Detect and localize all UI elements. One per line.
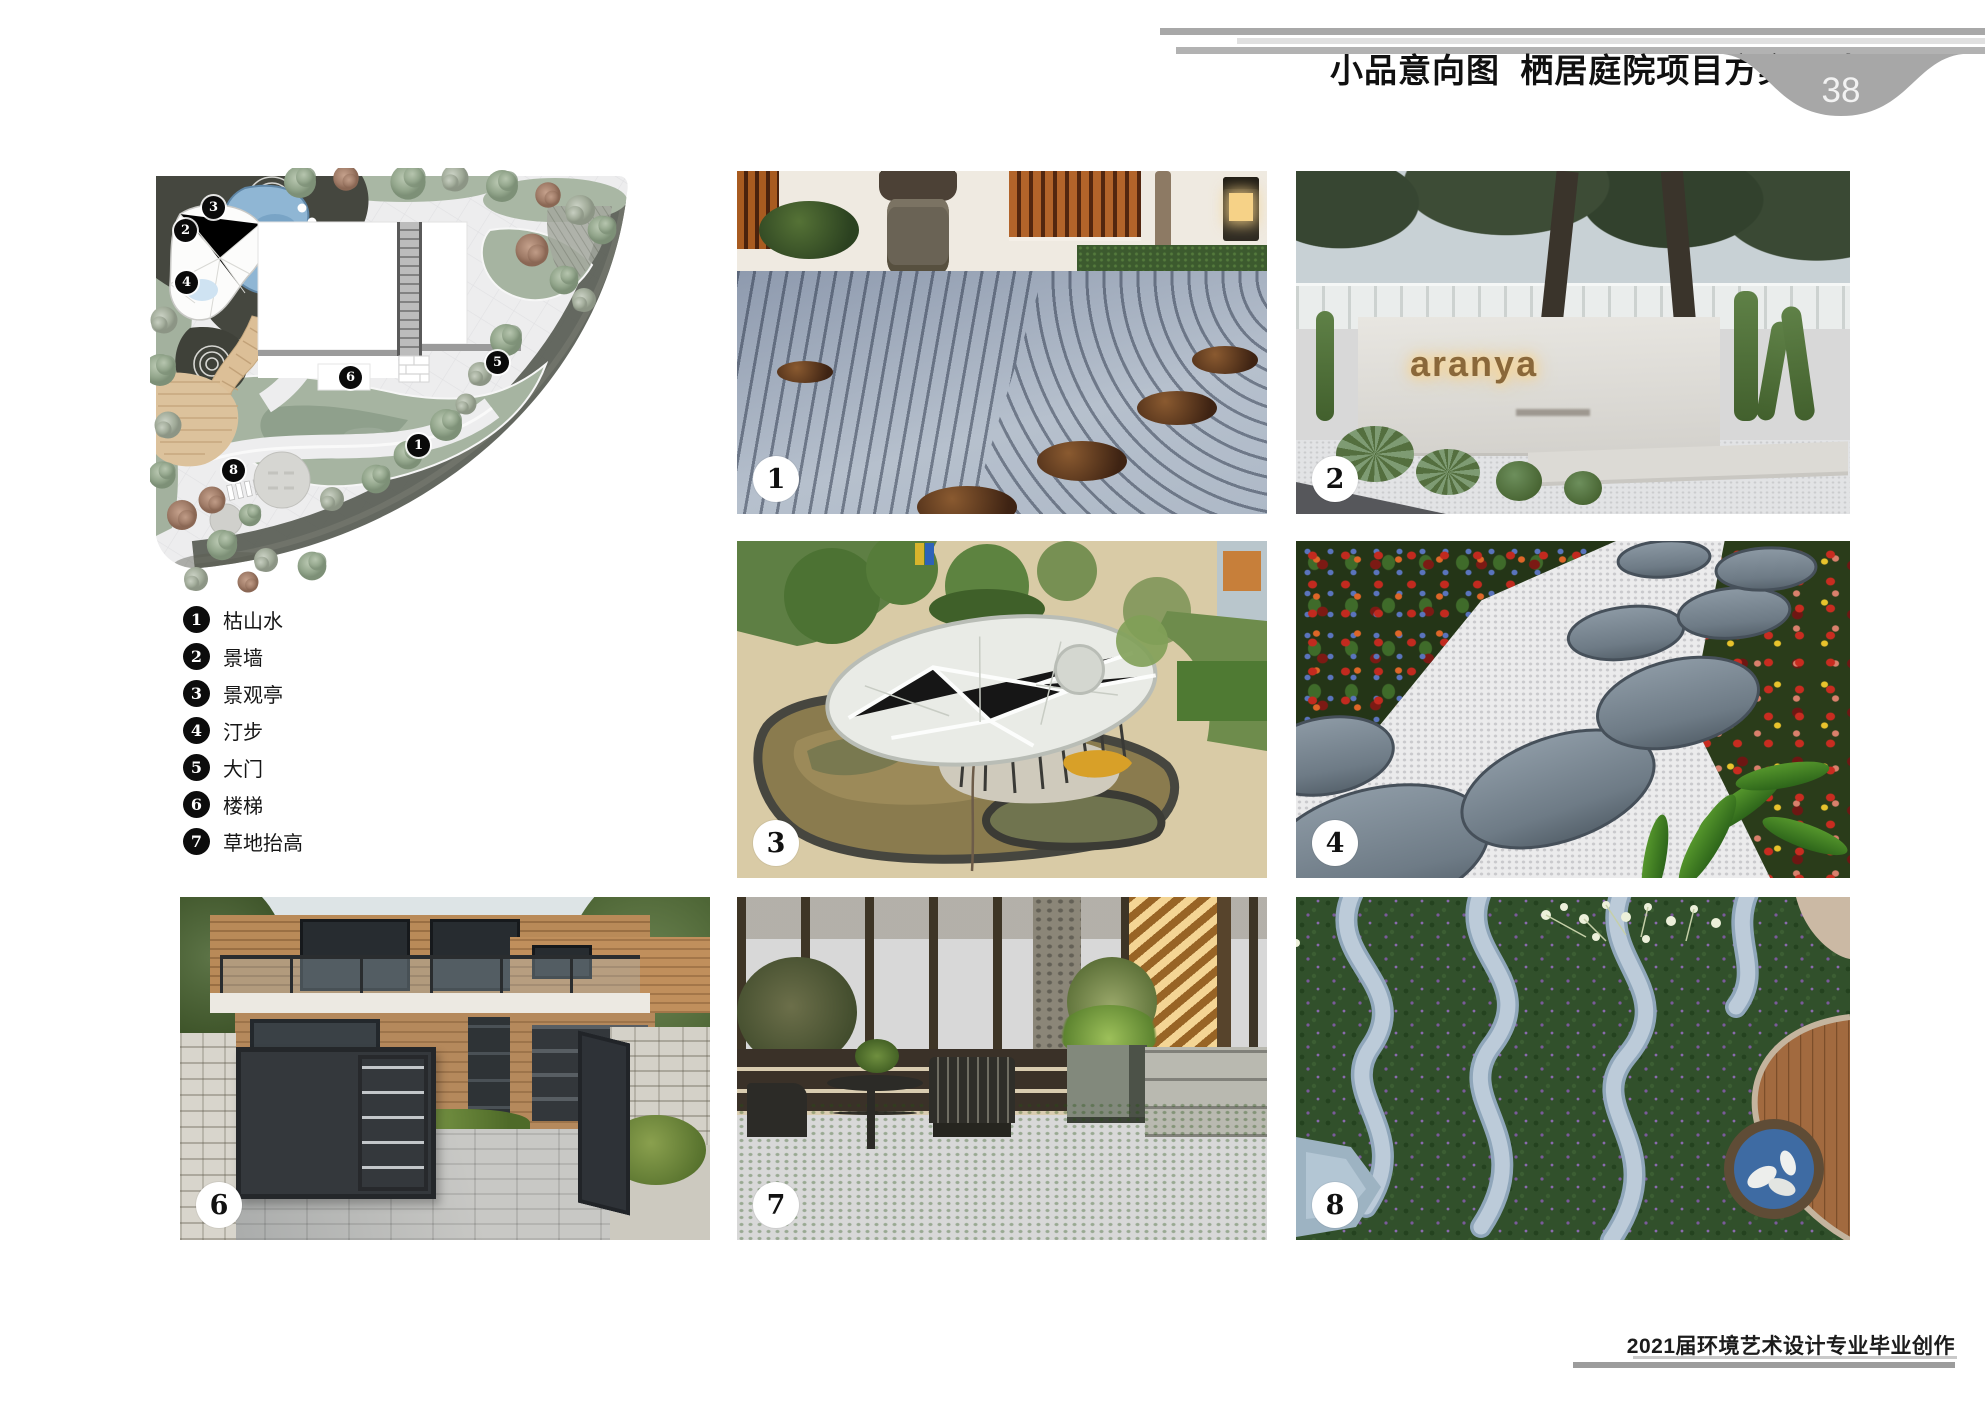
page-number: 38 bbox=[1822, 71, 1861, 110]
table-leg bbox=[867, 1089, 875, 1149]
patio-bench bbox=[929, 1057, 1015, 1123]
cactus bbox=[1316, 311, 1334, 421]
legend-number-1: 1 bbox=[183, 606, 210, 633]
patio-table bbox=[827, 1075, 923, 1091]
photo-zen-gravel-courtyard: 1 bbox=[737, 171, 1267, 514]
slide-page: 小品意向图 栖居庭院项目方案设计 38 bbox=[0, 0, 1985, 1404]
wood-slats-center bbox=[1009, 171, 1141, 241]
photo-aerial-winding-paths: 8 bbox=[1296, 897, 1850, 1240]
legend-label-5: 大门 bbox=[223, 753, 263, 782]
legend-label-7: 草地抬高 bbox=[223, 827, 303, 856]
plan-marker-4: 4 bbox=[175, 271, 198, 294]
patio-chair bbox=[747, 1083, 807, 1137]
gate-panel-bars bbox=[358, 1055, 428, 1191]
plan-marker-5: 5 bbox=[486, 351, 509, 374]
photo-badge-6: 6 bbox=[196, 1182, 242, 1228]
legend-label-6: 楼梯 bbox=[223, 790, 263, 819]
legend-label-2: 景墙 bbox=[223, 642, 263, 671]
aranya-sign-text: aranya bbox=[1410, 343, 1538, 385]
tree-trunk bbox=[1155, 171, 1171, 251]
photo-badge-1: 1 bbox=[753, 456, 799, 502]
photo-badge-8: 8 bbox=[1312, 1182, 1358, 1228]
photo-badge-3: 3 bbox=[753, 820, 799, 866]
legend-number-5: 5 bbox=[183, 754, 210, 781]
legend-number-6: 6 bbox=[183, 791, 210, 818]
legend-item-3: 3 景观亭 bbox=[183, 675, 303, 712]
photo-stepping-stone-path: 4 bbox=[1296, 541, 1850, 878]
glass-balcony-rail bbox=[220, 955, 640, 995]
photo-badge-4: 4 bbox=[1312, 820, 1358, 866]
site-plan-drawing bbox=[150, 168, 715, 598]
door-frame bbox=[1217, 897, 1231, 1057]
header-rule-top bbox=[1160, 28, 1985, 35]
photo-modern-gate: 6 bbox=[180, 897, 710, 1240]
legend-item-1: 1 枯山水 bbox=[183, 601, 303, 638]
plan-marker-6: 6 bbox=[339, 366, 362, 389]
aerial-scene bbox=[1296, 897, 1850, 1240]
legend-number-4: 4 bbox=[183, 717, 210, 744]
flat-stone bbox=[1192, 346, 1258, 374]
flat-stone bbox=[777, 361, 833, 383]
photo-aranya-feature-wall: aranya 2 bbox=[1296, 171, 1850, 514]
signage-wall: aranya bbox=[1358, 317, 1720, 453]
legend-number-2: 2 bbox=[183, 643, 210, 670]
photo-leaf-canopy-pavilion: 3 bbox=[737, 541, 1267, 878]
plan-marker-3: 3 bbox=[202, 196, 225, 219]
legend-label-1: 枯山水 bbox=[223, 605, 283, 634]
legend-item-2: 2 景墙 bbox=[183, 638, 303, 675]
page-number-tab: 38 bbox=[1723, 54, 1963, 128]
shrub bbox=[759, 201, 859, 259]
raked-gravel bbox=[737, 271, 1267, 514]
page-number-wave: 38 bbox=[1723, 54, 1963, 128]
legend-label-4: 汀步 bbox=[223, 716, 263, 745]
round-cactus bbox=[1564, 471, 1602, 505]
legend-item-4: 4 汀步 bbox=[183, 712, 303, 749]
footer-rule-thin bbox=[1633, 1356, 1957, 1359]
flat-stone bbox=[1037, 441, 1127, 481]
gate-panel-open bbox=[578, 1031, 630, 1216]
stone-pedestal bbox=[887, 199, 949, 273]
legend-item-7: 7 草地抬高 bbox=[183, 823, 303, 860]
lamp-glow bbox=[1229, 193, 1253, 221]
photo-badge-7: 7 bbox=[753, 1182, 799, 1228]
photo-raised-lawn-terrace: 7 bbox=[737, 897, 1267, 1240]
cactus bbox=[1734, 291, 1758, 421]
plan-marker-2: 2 bbox=[174, 219, 197, 242]
legend-item-6: 6 楼梯 bbox=[183, 786, 303, 823]
sign-subtext-line bbox=[1516, 409, 1590, 416]
legend-item-5: 5 大门 bbox=[183, 749, 303, 786]
plan-legend: 1 枯山水 2 景墙 3 景观亭 4 汀步 5 大门 6 楼梯 7 草地抬高 bbox=[183, 601, 303, 860]
agave-plant bbox=[1416, 449, 1480, 495]
legend-number-3: 3 bbox=[183, 680, 210, 707]
photo-badge-2: 2 bbox=[1312, 456, 1358, 502]
flat-stone bbox=[1137, 391, 1217, 425]
legend-label-3: 景观亭 bbox=[223, 679, 283, 708]
white-fascia bbox=[210, 993, 650, 1013]
pavilion-scene bbox=[737, 541, 1267, 878]
table-plant bbox=[855, 1039, 899, 1073]
footer-rule-thick bbox=[1573, 1362, 1955, 1368]
round-cactus bbox=[1496, 461, 1542, 501]
legend-number-7: 7 bbox=[183, 828, 210, 855]
site-plan: 1 2 3 4 5 6 8 bbox=[150, 168, 715, 598]
plan-marker-1: 1 bbox=[407, 434, 430, 457]
white-wall bbox=[737, 171, 1267, 271]
bonsai-pot bbox=[879, 171, 957, 201]
plan-marker-8: 8 bbox=[222, 459, 245, 482]
